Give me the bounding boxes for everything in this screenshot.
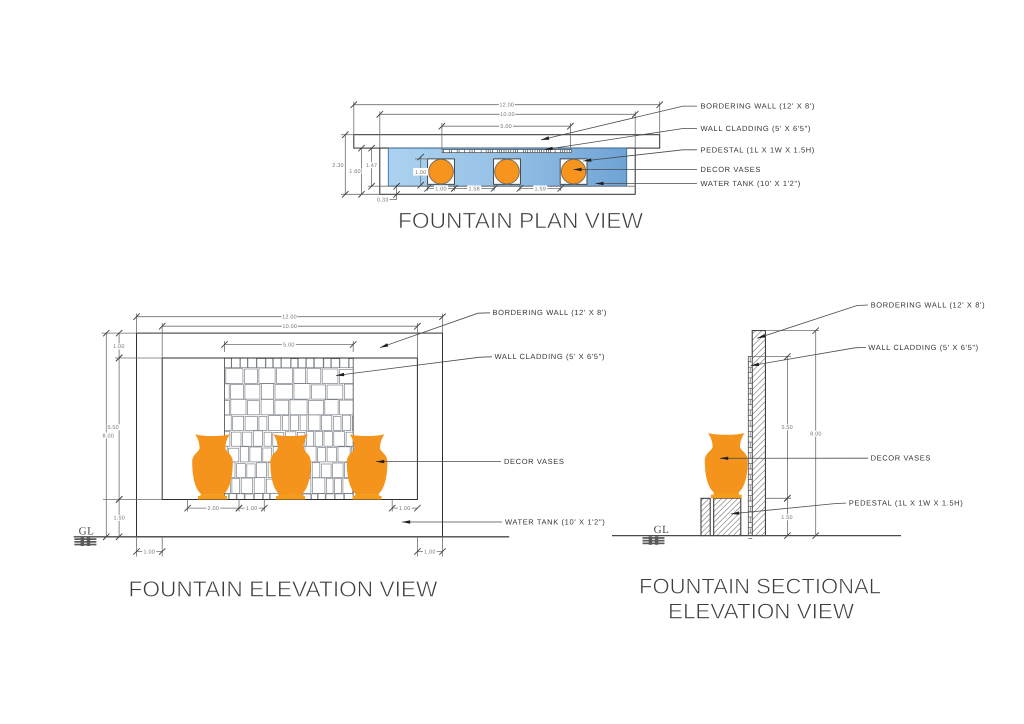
svg-text:DECOR VASES: DECOR VASES [871,454,931,463]
svg-text:5.50: 5.50 [107,425,119,431]
svg-text:1.60: 1.60 [349,169,361,175]
svg-text:1.58: 1.58 [468,186,480,192]
svg-text:1.50: 1.50 [781,515,793,521]
svg-text:FOUNTAIN ELEVATION VIEW: FOUNTAIN ELEVATION VIEW [129,576,438,601]
svg-text:ELEVATION VIEW: ELEVATION VIEW [668,599,855,623]
svg-text:PEDESTAL (1L X 1W X 1.5H): PEDESTAL (1L X 1W X 1.5H) [701,145,815,154]
svg-text:12.00: 12.00 [499,103,514,109]
svg-text:WATER TANK (10' X 1'2"): WATER TANK (10' X 1'2") [505,518,605,527]
svg-text:1.00: 1.00 [424,549,436,555]
svg-text:DECOR VASES: DECOR VASES [504,457,564,466]
svg-text:1.00: 1.00 [144,549,156,555]
svg-text:WALL CLADDING (5' X 6'5"): WALL CLADDING (5' X 6'5") [495,352,606,361]
svg-text:8.00: 8.00 [810,431,822,437]
svg-text:BORDERING WALL (12' X 8'): BORDERING WALL (12' X 8') [493,308,608,317]
svg-text:12.00: 12.00 [282,315,297,321]
svg-text:1.47: 1.47 [366,163,378,169]
svg-text:BORDERING WALL (12' X 8'): BORDERING WALL (12' X 8') [701,102,816,111]
svg-text:8.00: 8.00 [103,433,115,439]
svg-text:GL: GL [79,526,95,538]
svg-text:1.00: 1.00 [246,506,258,512]
svg-text:FOUNTAIN PLAN VIEW: FOUNTAIN PLAN VIEW [398,208,643,233]
svg-text:WALL CLADDING (5' X 6'5"): WALL CLADDING (5' X 6'5") [868,343,979,352]
svg-text:WATER TANK (10' X 1'2"): WATER TANK (10' X 1'2") [701,179,801,188]
svg-text:1.00: 1.00 [435,186,447,192]
svg-text:BORDERING WALL (12' X 8'): BORDERING WALL (12' X 8') [871,300,986,309]
svg-text:DECOR VASES: DECOR VASES [701,165,761,174]
svg-text:FOUNTAIN SECTIONAL: FOUNTAIN SECTIONAL [639,575,881,599]
svg-text:5.50: 5.50 [781,425,793,431]
svg-text:0.33: 0.33 [377,197,389,203]
svg-text:5.00: 5.00 [283,342,295,348]
svg-text:GL: GL [654,524,670,536]
svg-text:1.59: 1.59 [535,186,547,192]
svg-text:2.00: 2.00 [208,506,220,512]
svg-text:1.00: 1.00 [113,344,125,350]
svg-text:2.30: 2.30 [332,163,344,169]
svg-text:WALL CLADDING (5' X 6'5"): WALL CLADDING (5' X 6'5") [701,124,812,133]
svg-text:PEDESTAL (1L X 1W X 1.5H): PEDESTAL (1L X 1W X 1.5H) [849,499,963,508]
svg-text:5.00: 5.00 [500,124,512,130]
svg-text:1.00: 1.00 [415,170,427,176]
svg-text:1.00: 1.00 [399,506,411,512]
svg-text:10.00: 10.00 [282,324,297,330]
svg-text:1.50: 1.50 [114,516,126,522]
svg-text:10.00: 10.00 [500,112,515,118]
